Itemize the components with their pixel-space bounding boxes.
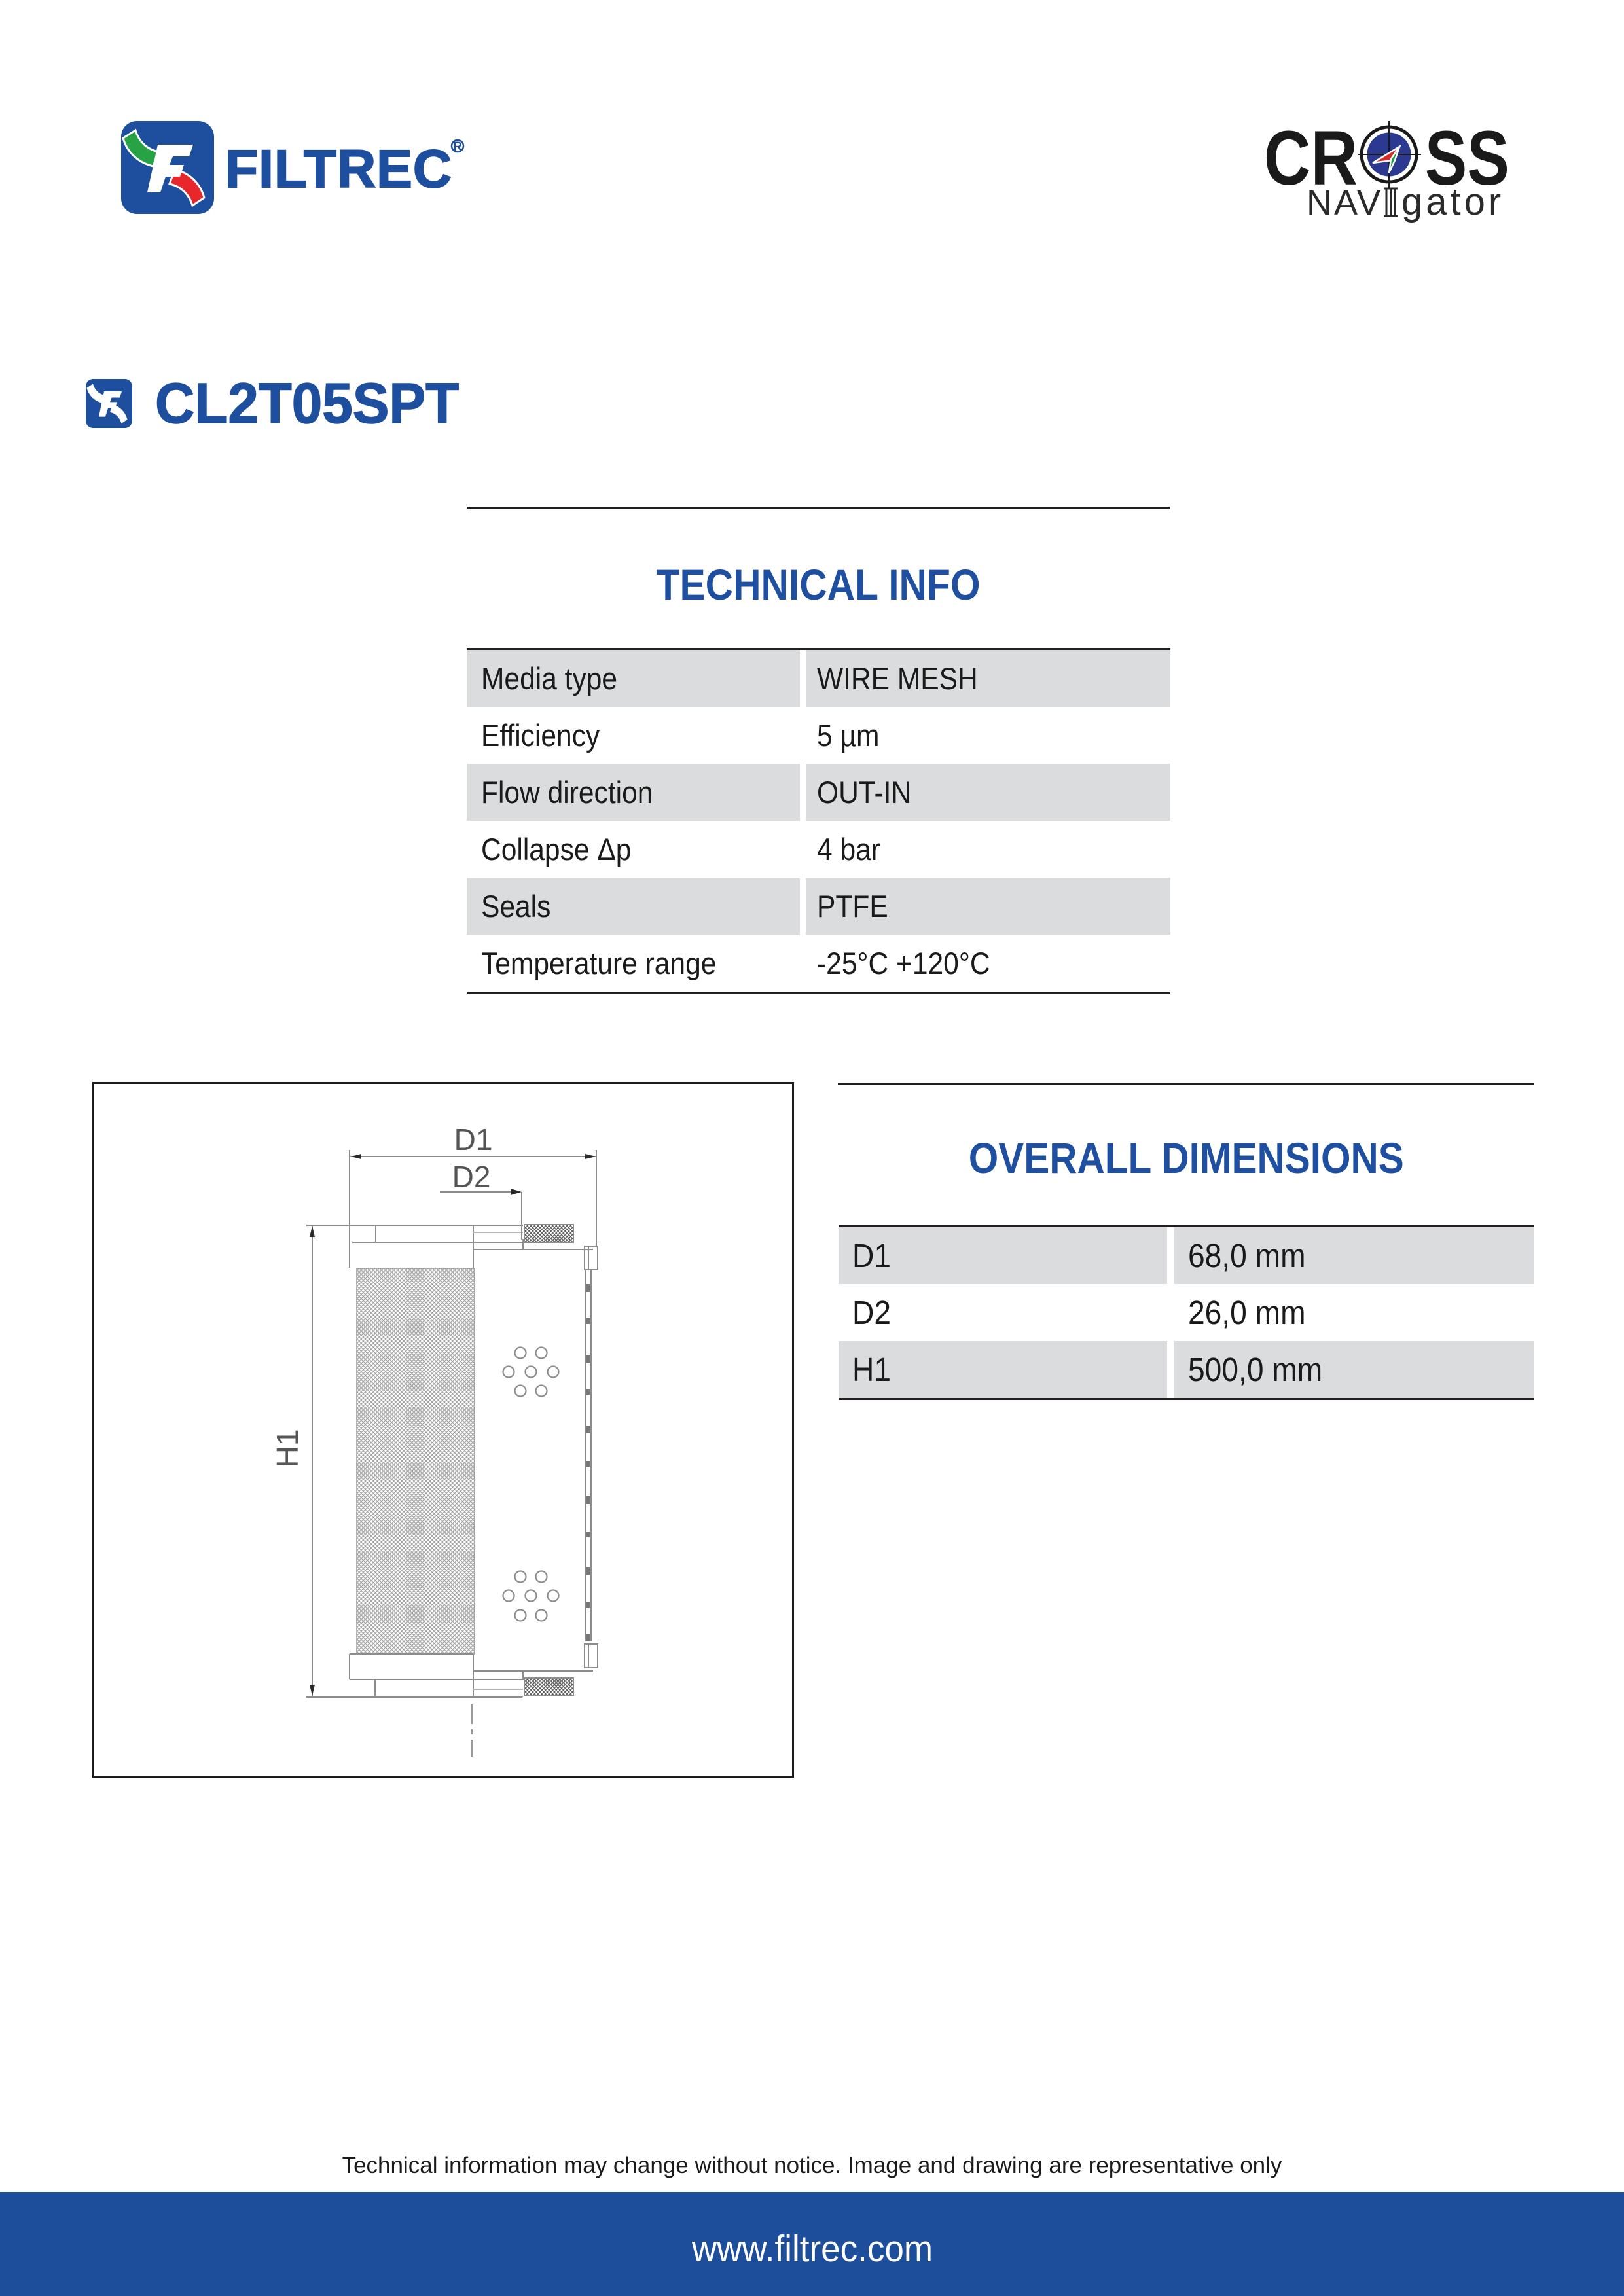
svg-text:R: R bbox=[453, 140, 462, 154]
svg-text:H1: H1 bbox=[270, 1429, 304, 1468]
svg-text:D1: D1 bbox=[454, 1122, 493, 1157]
svg-text:gator: gator bbox=[1401, 181, 1504, 223]
svg-text:FILTREC: FILTREC bbox=[225, 139, 452, 199]
svg-text:D2: D2 bbox=[452, 1160, 491, 1194]
svg-text:NAV: NAV bbox=[1307, 183, 1382, 223]
